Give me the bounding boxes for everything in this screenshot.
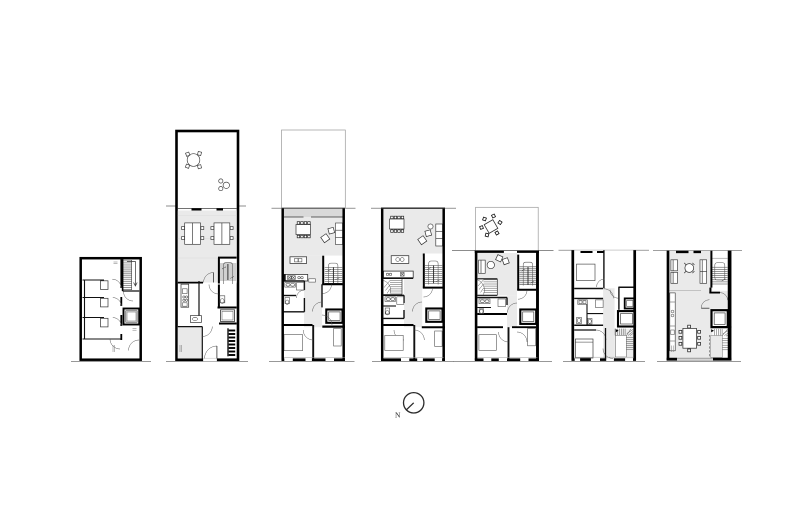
svg-text:N: N bbox=[395, 411, 401, 420]
